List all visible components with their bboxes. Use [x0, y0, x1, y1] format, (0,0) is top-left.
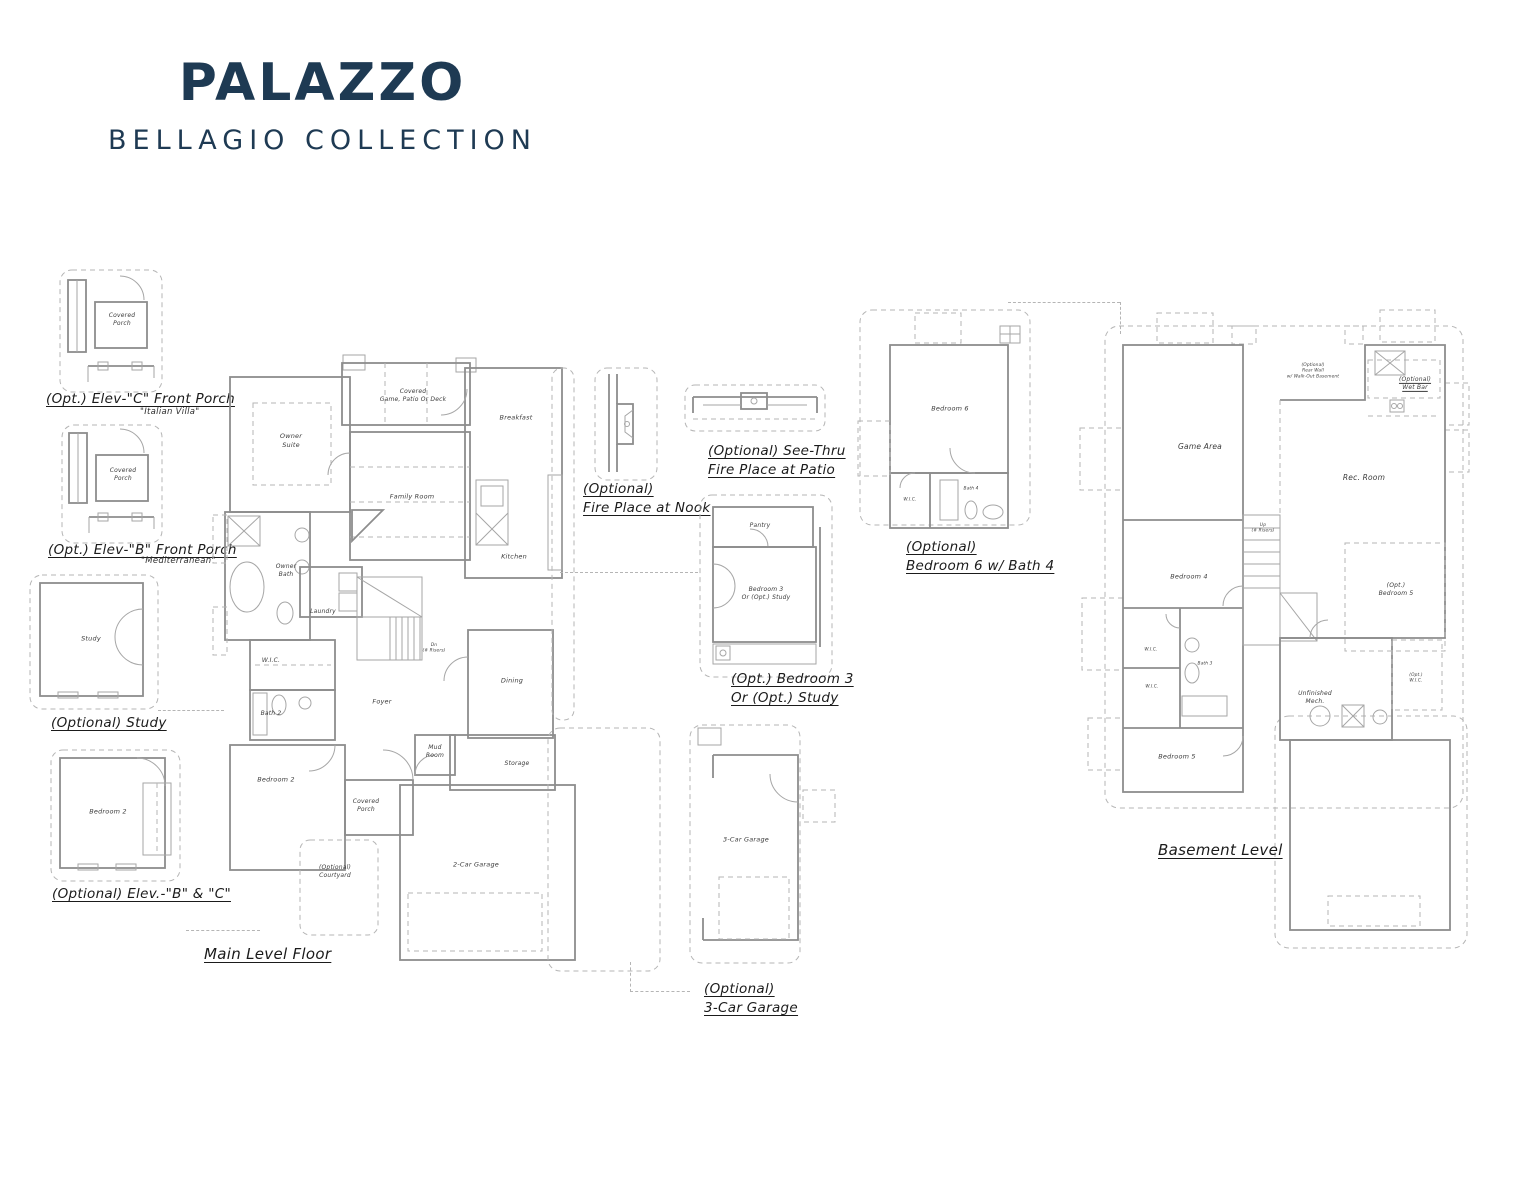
room-label-covered-game-patio: Covered Game, Patio Or Deck [380, 388, 447, 404]
room-label-garage3: 3-Car Garage [723, 836, 769, 845]
caption-main-level: Main Level Floor [204, 944, 331, 965]
caption-bedroom6: (Optional) Bedroom 6 w/ Bath 4 [906, 538, 1054, 576]
room-label-study: Study [81, 635, 101, 644]
caption-basement: Basement Level [1158, 840, 1283, 861]
room-label-wic-bsmt-b: W.I.C. [1145, 684, 1158, 690]
brand-block: PALAZZO BELLAGIO COLLECTION [100, 56, 545, 156]
plan-garage3-linework [688, 722, 840, 974]
caption-elev-c-style: "Italian Villa" [140, 407, 200, 419]
connector-garage3-line-h [630, 991, 690, 992]
plan-fireplace-patio-linework [683, 383, 831, 435]
connector-bedroom6-line-h [1008, 302, 1120, 303]
room-label-laundry: Laundry [310, 608, 336, 616]
room-label-wic-bsmt-a: W.I.C. [1144, 647, 1157, 653]
plan-fireplace-nook-linework [593, 366, 665, 488]
room-label-pantry: Pantry [750, 522, 771, 530]
room-label-bedroom3: Bedroom 3 Or (Opt.) Study [742, 586, 791, 602]
page-title: PALAZZO [100, 56, 545, 111]
room-label-owner-suite: Owner Suite [280, 432, 302, 450]
room-label-bedroom4: Bedroom 4 [1170, 573, 1208, 582]
caption-bedroom3: (Opt.) Bedroom 3 Or (Opt.) Study [731, 670, 854, 708]
room-label-bedroom2-opt: Bedroom 2 [89, 808, 127, 817]
caption-study: (Optional) Study [51, 714, 167, 733]
room-label-wic-bed6: W.I.C. [903, 497, 916, 503]
room-label-bedroom5-opt: (Opt.) Bedroom 5 [1379, 582, 1414, 598]
room-label-foyer: Foyer [372, 698, 391, 707]
room-label-wic-opt: (Opt.) W.I.C. [1409, 672, 1422, 684]
room-label-bath3: Bath 3 [1197, 661, 1212, 667]
plan-bedroom6-linework [855, 298, 1040, 543]
room-label-covered-porch-main: Covered Porch [353, 798, 379, 814]
caption-garage3: (Optional) 3-Car Garage [704, 980, 798, 1018]
room-label-unfinished-mech: Unfinished Mech. [1298, 690, 1332, 706]
room-label-bath4: Bath 4 [963, 486, 978, 492]
room-label-bath2: Bath 2 [261, 710, 282, 718]
connector-bedroom6-line-v [1120, 302, 1121, 334]
room-label-wic-main: W.I.C. [262, 657, 280, 665]
room-label-stairs-up: Up (# Risers) [1252, 522, 1275, 534]
plan-elev-c-porch-linework [58, 266, 170, 398]
room-label-mud-room: Mud Room [426, 744, 444, 760]
room-label-rec-room: Rec. Room [1343, 473, 1385, 483]
room-label-courtyard: (Optional) Courtyard [319, 864, 351, 880]
floor-plan-sheet: PALAZZO BELLAGIO COLLECTION Covered Porc… [0, 0, 1536, 1187]
connector-bedroom3-line [560, 572, 698, 573]
room-label-bedroom5: Bedroom 5 [1158, 753, 1196, 762]
room-label-stairs-dn: Dn (# Risers) [423, 642, 446, 654]
room-label-bedroom2-main: Bedroom 2 [257, 776, 295, 785]
page-subtitle: BELLAGIO COLLECTION [100, 125, 545, 156]
room-label-breakfast: Breakfast [500, 414, 533, 423]
room-label-owner-bath: Owner Bath [276, 563, 297, 579]
room-label-wet-bar: (Optional) Wet Bar [1399, 376, 1431, 392]
room-label-kitchen: Kitchen [501, 553, 527, 562]
room-label-porch-b: Covered Porch [110, 467, 136, 483]
caption-fireplace-nook: (Optional) Fire Place at Nook [583, 480, 711, 518]
connector-study-line [158, 710, 224, 711]
plan-optional-study-linework [28, 571, 164, 717]
caption-fireplace-patio: (Optional) See-Thru Fire Place at Patio [708, 442, 846, 480]
connector-bedroom2-line [186, 930, 260, 931]
room-label-storage: Storage [505, 760, 530, 768]
room-label-garage2: 2-Car Garage [453, 861, 499, 870]
room-label-walkout-note: (Optional) Rear Wall w/ Walk-Out Basemen… [1287, 362, 1339, 379]
plan-elev-b-porch-linework [60, 421, 168, 547]
room-label-bedroom6: Bedroom 6 [931, 405, 969, 414]
room-label-porch-c: Covered Porch [109, 312, 135, 328]
connector-garage3-line-v [630, 962, 631, 992]
room-label-dining: Dining [501, 677, 523, 686]
room-label-family-room: Family Room [390, 493, 435, 502]
room-label-game-area: Game Area [1178, 442, 1222, 452]
